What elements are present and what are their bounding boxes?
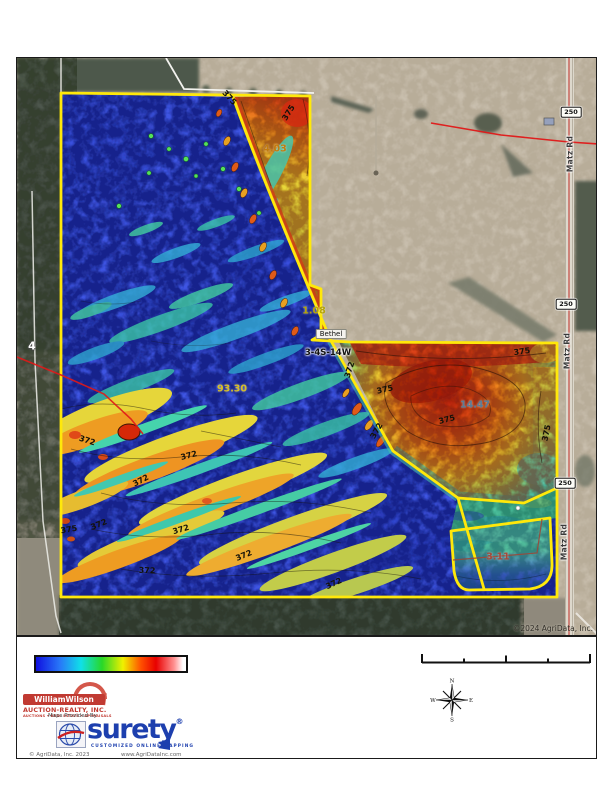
building-icon	[544, 118, 554, 125]
route-shield: 250	[561, 107, 582, 118]
agridata-copyright: © AgriData, Inc. 2023	[29, 752, 90, 758]
road-name-label: Matz Rd	[566, 136, 574, 172]
agridata-website: www.AgriDataInc.com	[121, 752, 182, 758]
acreage-label: 93.30	[217, 384, 247, 394]
scale-bar	[421, 653, 591, 664]
route-marker: 4	[28, 341, 36, 352]
map-credit: ©2024 AgriData, Inc.	[513, 624, 593, 633]
acreage-label: 3.11	[486, 552, 509, 562]
section-township-label: 3-4S-14W	[305, 349, 351, 358]
compass-west-label: W	[430, 698, 436, 704]
road-name-label: Matz Rd	[563, 333, 571, 369]
aerial-map: 375 375 372 375 375 375 375 372 372 372 …	[16, 57, 597, 636]
map-report-page: 375 375 372 375 375 375 375 372 372 372 …	[0, 0, 612, 792]
globe-icon	[56, 721, 86, 748]
compass-rose-icon: N S E W	[430, 678, 474, 722]
legend-panel: WilliamWilson AUCTION-REALTY, INC. AUCTI…	[16, 636, 597, 759]
road-name-label: Matz Rd	[560, 524, 568, 560]
flag-icon	[158, 740, 170, 750]
acreage-label: 1.08	[302, 306, 325, 316]
firm-name-banner: WilliamWilson	[23, 694, 105, 705]
compass-north-label: N	[450, 679, 455, 685]
registered-mark: ®	[175, 717, 183, 726]
elevation-color-scale	[34, 655, 188, 673]
route-shield: 250	[556, 299, 577, 310]
compass-south-label: S	[450, 718, 454, 723]
acreage-label: 4.03	[263, 144, 286, 154]
surety-tagline: CUSTOMIZED ONLINE MAPPING	[91, 744, 194, 749]
route-shield: 250	[555, 478, 576, 489]
place-label: Bethel	[316, 329, 347, 339]
contour-label: 372	[139, 567, 156, 576]
acreage-label: 14.47	[460, 400, 490, 410]
compass-east-label: E	[469, 698, 473, 704]
